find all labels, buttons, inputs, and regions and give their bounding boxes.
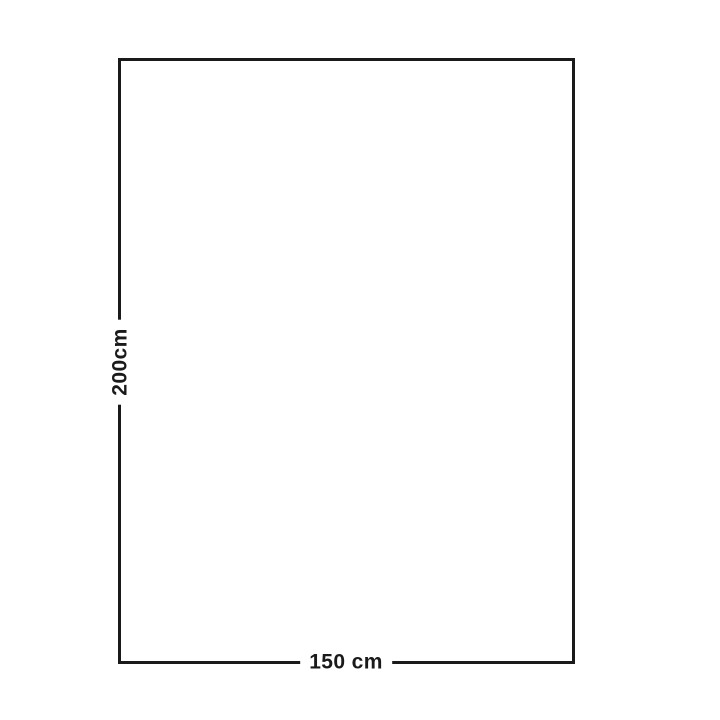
rectangle-outline	[118, 58, 575, 664]
height-dimension-label: 200cm	[107, 319, 134, 404]
dimension-diagram: 200cm 150 cm	[0, 0, 720, 720]
width-dimension-label: 150 cm	[300, 649, 392, 676]
